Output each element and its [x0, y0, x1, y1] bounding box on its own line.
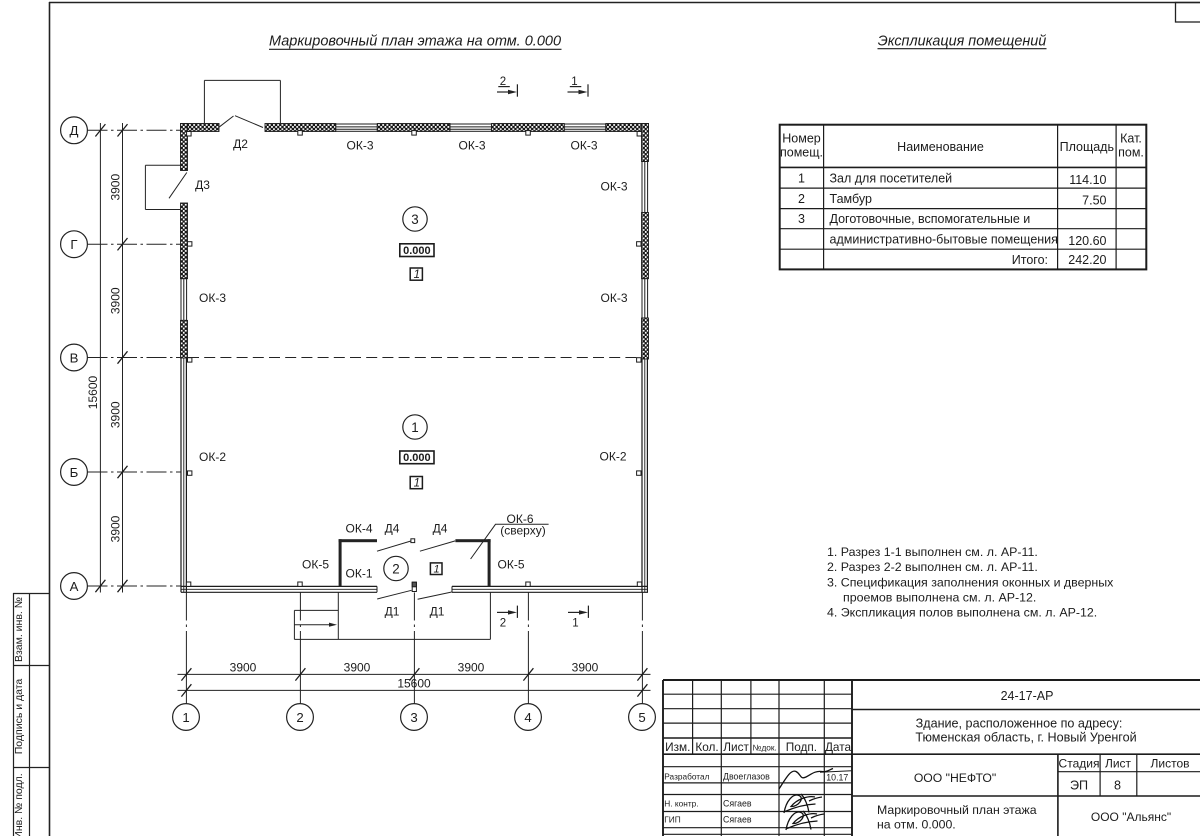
svg-text:Д3: Д3 [195, 178, 210, 192]
svg-text:2. Разрез 2-2 выполнен см. л.: 2. Разрез 2-2 выполнен см. л. АР-11. [827, 560, 1038, 574]
svg-text:Листов: Листов [1151, 757, 1190, 771]
svg-text:ОК-2: ОК-2 [199, 450, 226, 464]
svg-text:№док.: №док. [753, 743, 777, 753]
svg-text:Изм.: Изм. [665, 740, 690, 754]
svg-text:2: 2 [798, 192, 805, 206]
svg-text:2: 2 [500, 618, 506, 630]
svg-text:ООО "Альянс": ООО "Альянс" [1091, 810, 1171, 824]
svg-text:ЭП: ЭП [1070, 779, 1088, 793]
svg-text:Кат.: Кат. [1120, 132, 1142, 146]
svg-text:Наименование: Наименование [897, 140, 984, 154]
svg-text:ГИП: ГИП [664, 815, 680, 825]
svg-text:ОК-5: ОК-5 [302, 558, 329, 572]
svg-text:Взам. инв. №: Взам. инв. № [13, 597, 25, 662]
svg-text:ОК-3: ОК-3 [199, 291, 226, 305]
svg-text:3900: 3900 [572, 661, 599, 675]
svg-text:1: 1 [414, 269, 420, 281]
svg-text:Площадь: Площадь [1060, 140, 1114, 154]
svg-text:2: 2 [296, 710, 303, 725]
svg-text:ОК-4: ОК-4 [346, 522, 373, 536]
svg-text:Д1: Д1 [430, 605, 445, 619]
svg-text:Лист: Лист [723, 740, 749, 754]
svg-text:3900: 3900 [109, 174, 123, 201]
svg-text:Сягаев: Сягаев [723, 815, 752, 825]
svg-text:1. Разрез 1-1 выполнен см. л.: 1. Разрез 1-1 выполнен см. л. АР-11. [827, 545, 1038, 559]
svg-text:7.50: 7.50 [1082, 194, 1106, 208]
svg-text:1: 1 [411, 420, 418, 435]
svg-text:Итого:: Итого: [1012, 253, 1048, 267]
svg-text:1: 1 [798, 172, 805, 186]
svg-text:Д4: Д4 [433, 522, 448, 536]
svg-text:ОК-3: ОК-3 [601, 180, 628, 194]
svg-text:ОК-3: ОК-3 [459, 139, 486, 153]
svg-text:242.20: 242.20 [1068, 253, 1106, 267]
svg-text:3: 3 [798, 212, 805, 226]
svg-text:3900: 3900 [344, 661, 371, 675]
svg-text:Стадия: Стадия [1059, 757, 1100, 771]
svg-text:24-17-АР: 24-17-АР [1001, 689, 1054, 703]
svg-text:ОК-3: ОК-3 [347, 139, 374, 153]
svg-text:3: 3 [411, 212, 418, 227]
svg-text:Г: Г [70, 237, 77, 252]
svg-text:Д2: Д2 [233, 137, 248, 151]
svg-text:Здание, расположенное по адрес: Здание, расположенное по адресу: [916, 717, 1123, 731]
svg-text:Б: Б [70, 465, 79, 480]
svg-text:3: 3 [410, 710, 417, 725]
svg-text:4: 4 [524, 710, 531, 725]
svg-text:Инв. № подл.: Инв. № подл. [13, 773, 25, 836]
svg-text:ОК-5: ОК-5 [498, 558, 525, 572]
svg-text:4. Экспликация полов выполнена: 4. Экспликация полов выполнена см. л. АР… [827, 606, 1097, 620]
svg-text:Н. контр.: Н. контр. [664, 799, 698, 809]
svg-text:Кол.: Кол. [695, 740, 718, 754]
svg-text:Подпись и дата: Подпись и дата [13, 679, 25, 755]
svg-text:3900: 3900 [109, 287, 123, 314]
svg-text:3900: 3900 [458, 661, 485, 675]
svg-text:Подп.: Подп. [786, 740, 817, 754]
svg-text:1: 1 [434, 563, 440, 575]
svg-text:Номер: Номер [782, 132, 821, 146]
svg-text:1: 1 [572, 618, 578, 630]
svg-text:ОК-1: ОК-1 [346, 567, 373, 581]
svg-text:помещ.: помещ. [780, 146, 823, 160]
svg-text:5: 5 [638, 710, 645, 725]
svg-text:Доготовочные, вспомогательные: Доготовочные, вспомогательные и [830, 212, 1031, 226]
svg-text:ООО "НЕФТО": ООО "НЕФТО" [914, 771, 996, 785]
svg-text:0.000: 0.000 [403, 452, 431, 464]
svg-text:Сягаев: Сягаев [723, 799, 752, 809]
svg-text:Зал для посетителей: Зал для посетителей [830, 172, 953, 186]
svg-text:120.60: 120.60 [1068, 234, 1106, 248]
svg-text:2: 2 [392, 561, 399, 576]
svg-text:Маркировочный план этажа: Маркировочный план этажа [877, 803, 1037, 817]
svg-text:3900: 3900 [230, 661, 257, 675]
svg-text:1: 1 [182, 710, 189, 725]
svg-text:3. Спецификация заполнения око: 3. Спецификация заполнения оконных и две… [827, 575, 1114, 589]
svg-text:Д: Д [70, 123, 79, 138]
svg-text:0.000: 0.000 [403, 245, 431, 257]
svg-text:Тюменская область, г. Новый Ур: Тюменская область, г. Новый Уренгой [915, 731, 1136, 745]
svg-text:Лист: Лист [1105, 757, 1132, 771]
svg-text:114.10: 114.10 [1069, 173, 1106, 187]
svg-text:3900: 3900 [109, 401, 123, 428]
svg-text:Маркировочный план этажа на от: Маркировочный план этажа на отм. 0.000 [269, 34, 561, 50]
svg-text:на отм. 0.000.: на отм. 0.000. [877, 818, 956, 832]
svg-text:Двоеглазов: Двоеглазов [723, 772, 770, 782]
svg-text:Разработал: Разработал [664, 772, 709, 782]
svg-text:Тамбур: Тамбур [830, 192, 872, 206]
svg-text:10.17: 10.17 [826, 772, 848, 782]
svg-text:А: А [70, 579, 79, 594]
svg-text:1: 1 [414, 477, 420, 489]
svg-text:Дата: Дата [825, 740, 852, 754]
svg-text:8: 8 [1114, 779, 1121, 793]
svg-text:15600: 15600 [397, 677, 431, 691]
svg-text:3900: 3900 [109, 515, 123, 542]
svg-text:Д4: Д4 [385, 522, 400, 536]
svg-text:ОК-3: ОК-3 [571, 139, 598, 153]
svg-text:(сверху): (сверху) [500, 524, 545, 538]
svg-text:15600: 15600 [86, 375, 100, 409]
svg-text:административно-бытовые помеще: административно-бытовые помещения [830, 233, 1058, 247]
svg-text:проемов выполнена см. л. АР-12: проемов выполнена см. л. АР-12. [843, 591, 1036, 605]
svg-text:пом.: пом. [1118, 146, 1144, 160]
svg-text:Д1: Д1 [385, 605, 400, 619]
svg-text:ОК-3: ОК-3 [601, 291, 628, 305]
svg-text:Экспликация помещений: Экспликация помещений [878, 33, 1047, 49]
svg-text:В: В [70, 350, 79, 365]
svg-text:ОК-2: ОК-2 [600, 450, 627, 464]
